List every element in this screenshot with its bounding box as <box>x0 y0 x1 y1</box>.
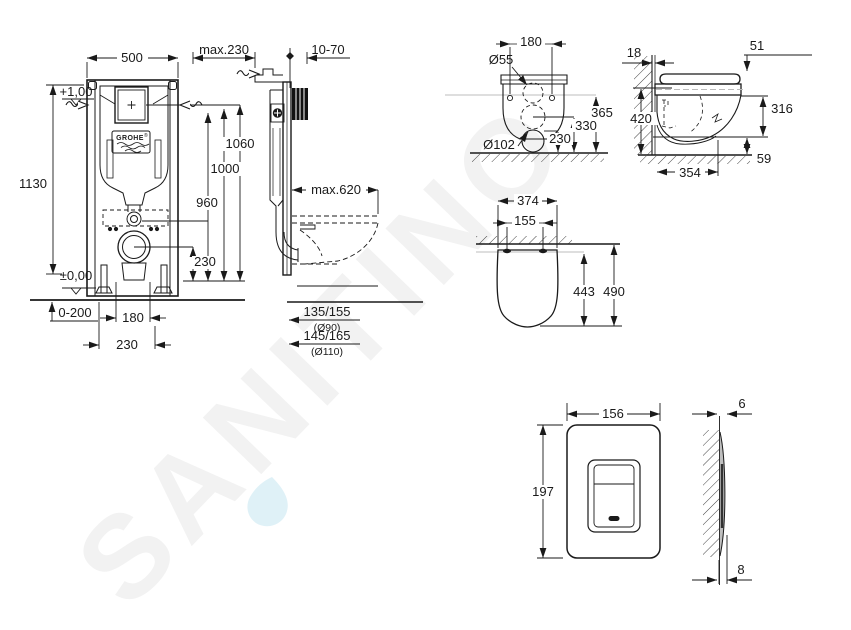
wc-top-view <box>476 236 620 327</box>
dim-frame-height: 1130 <box>19 176 47 191</box>
dim-seat-thickness: 51 <box>750 38 764 53</box>
dim-plate-depth: 8 <box>737 562 744 577</box>
dim-wc-height: 420 <box>630 111 652 126</box>
dim-wc-inlet-dia: Ø55 <box>489 52 514 67</box>
frame-front-dimensions: 500 +1,00 1130 ±0,00 1060 1000 960 230 <box>19 50 257 352</box>
level-zero-label: ±0,00 <box>60 268 92 283</box>
grohe-logo: GROHE ® <box>112 131 150 153</box>
level-top-label: +1,00 <box>60 84 93 99</box>
dim-rim-height: 316 <box>771 101 793 116</box>
dim-frame-width: 500 <box>121 50 143 65</box>
dim-outlet-height: 230 <box>194 254 216 269</box>
dim-wc-outlet-dia: Ø102 <box>483 137 515 152</box>
wc-side-view <box>634 55 768 164</box>
dim-wc-depth: 354 <box>679 165 701 180</box>
dim-feet-range: 0-200 <box>58 305 91 320</box>
flush-button-mark <box>609 516 620 521</box>
dim-depth-seat: 443 <box>573 284 595 299</box>
dim-depth-total: 490 <box>603 284 625 299</box>
dim-wall-thickness: 18 <box>627 45 641 60</box>
dim-bolt-span: 180 <box>122 310 144 325</box>
dim-seat-width: 374 <box>517 193 539 208</box>
wc-top-dimensions: 374 155 443 490 <box>493 193 629 326</box>
dim-plate-thickness: 6 <box>738 396 745 411</box>
flush-plate-side-view <box>703 416 725 585</box>
dim-plate-width: 156 <box>602 406 624 421</box>
flush-plate-front-view <box>567 425 660 558</box>
dim-drain1: 135/155 <box>304 304 351 319</box>
dim-height-1000: 1000 <box>211 161 240 176</box>
dim-plate-height: 197 <box>532 484 554 499</box>
dim-wall-finish: 10-70 <box>311 42 344 57</box>
installation-diagram: SANITINO GROHE ® <box>0 0 851 630</box>
dim-hinge-span: 155 <box>514 213 536 228</box>
dim-drain2: 145/165 <box>304 328 351 343</box>
dim-wc-hole-span: 180 <box>520 34 542 49</box>
technical-drawing-page: SANITINO GROHE ® <box>0 0 851 630</box>
dim-height-960: 960 <box>196 195 218 210</box>
dim-pipe-span: 230 <box>116 337 138 352</box>
dim-bowl-max: max.620 <box>311 182 361 197</box>
dim-wc-h330: 330 <box>575 118 597 133</box>
dim-frame-depth: max.230 <box>199 42 249 57</box>
dim-clearance: 59 <box>757 151 771 166</box>
dim-height-1060: 1060 <box>226 136 255 151</box>
dim-drain2-dia: (Ø110) <box>311 346 343 358</box>
registered-mark: ® <box>144 132 148 139</box>
grohe-logo-text: GROHE <box>116 135 144 142</box>
dim-wc-h230: 230 <box>549 131 571 146</box>
